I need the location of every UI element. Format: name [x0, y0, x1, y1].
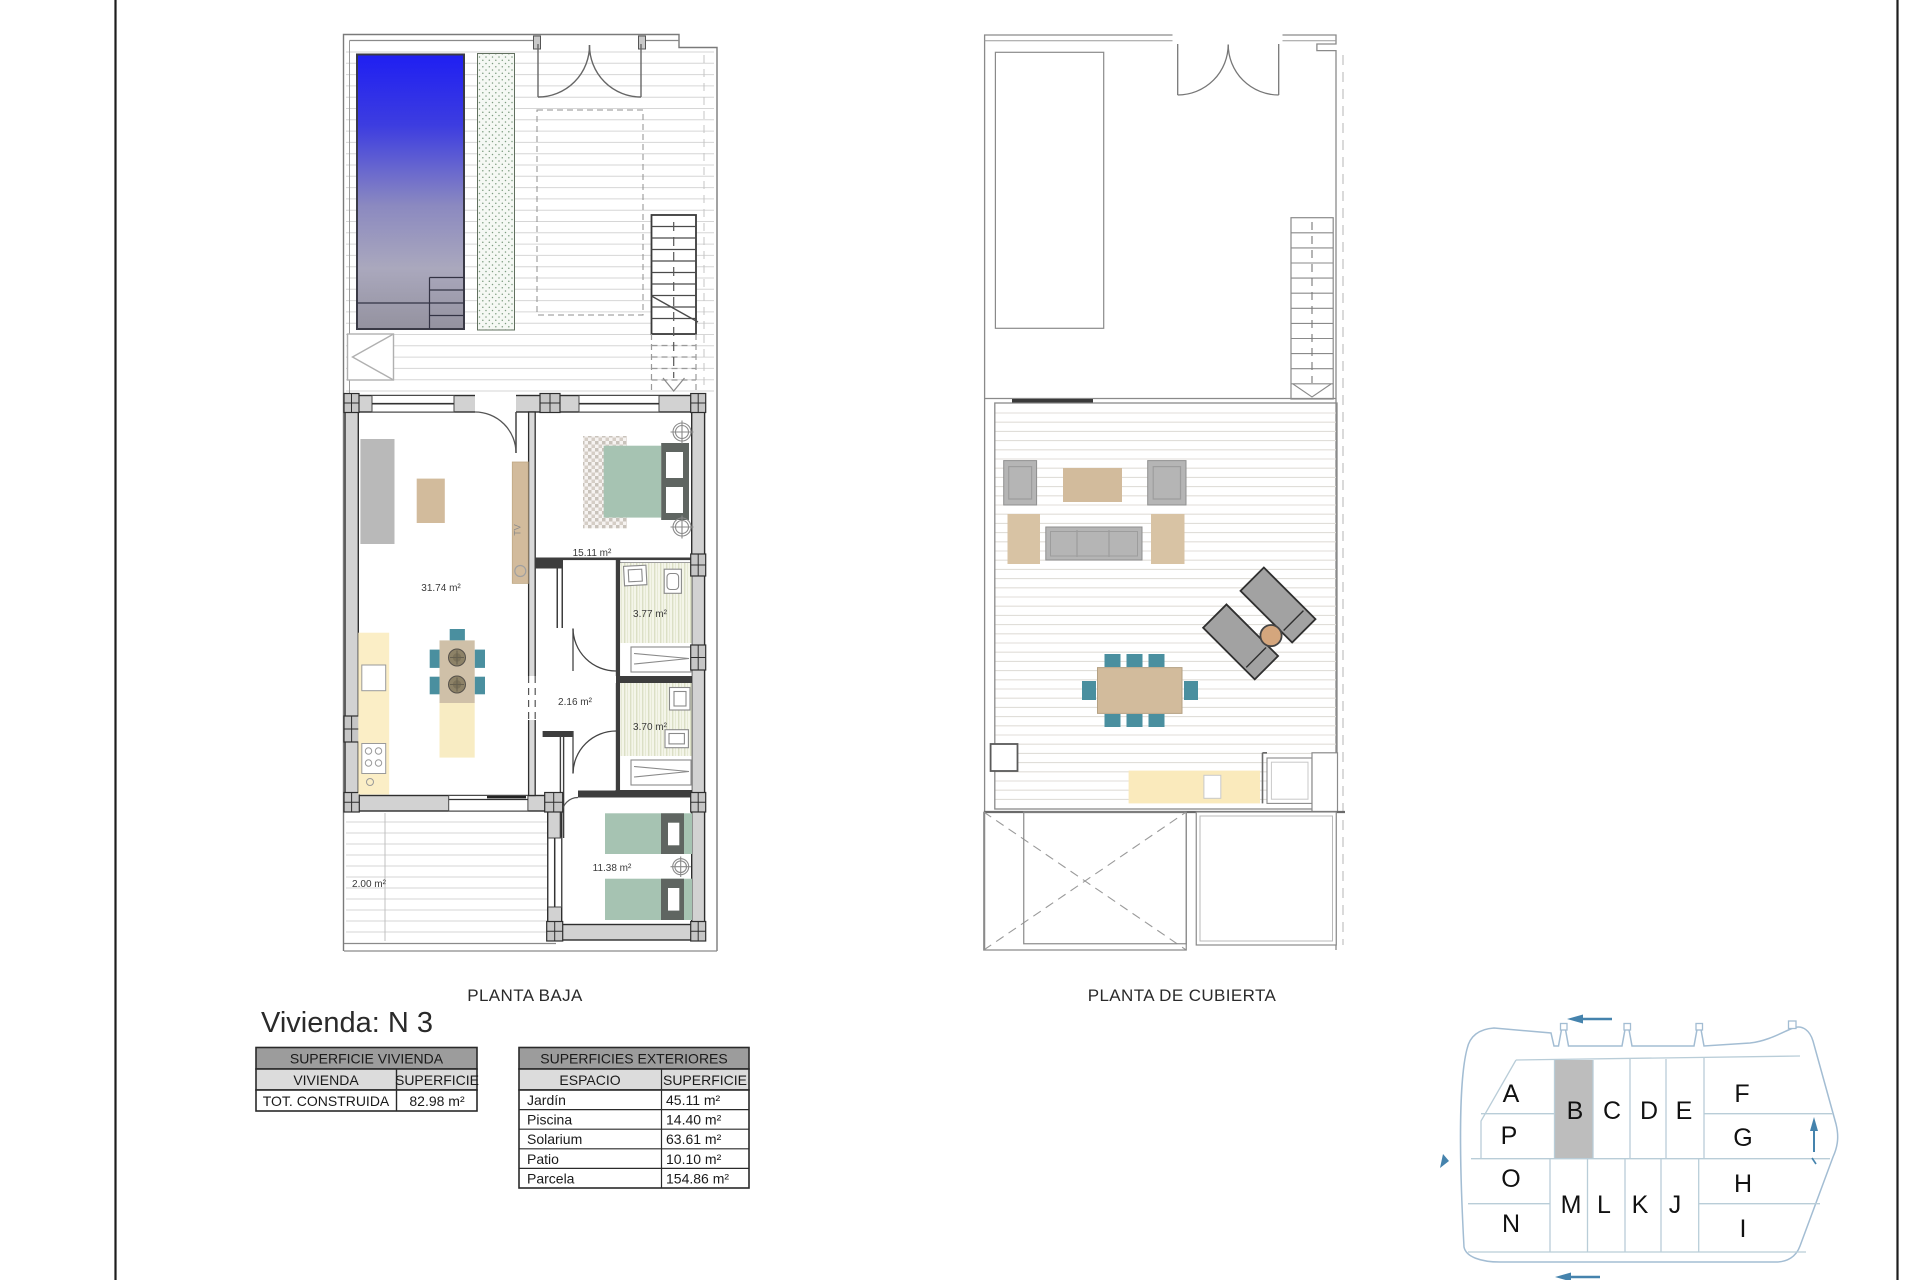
svg-text:Piscina: Piscina	[527, 1112, 572, 1128]
svg-text:H: H	[1734, 1170, 1752, 1198]
svg-text:Vivienda: N 3: Vivienda: N 3	[261, 1007, 433, 1039]
svg-text:15.11 m²: 15.11 m²	[573, 548, 612, 559]
svg-text:K: K	[1632, 1191, 1649, 1219]
svg-text:D: D	[1640, 1097, 1658, 1125]
svg-text:2.16 m²: 2.16 m²	[558, 697, 593, 708]
svg-text:154.86 m²: 154.86 m²	[666, 1170, 729, 1186]
svg-text:G: G	[1733, 1124, 1752, 1152]
svg-text:L: L	[1597, 1191, 1611, 1219]
svg-text:TOT. CONSTRUIDA: TOT. CONSTRUIDA	[263, 1093, 390, 1109]
svg-text:2.00 m²: 2.00 m²	[352, 879, 387, 890]
svg-text:J: J	[1669, 1191, 1682, 1219]
svg-text:F: F	[1734, 1080, 1749, 1108]
svg-text:SUPERFICIE VIVIENDA: SUPERFICIE VIVIENDA	[290, 1051, 444, 1067]
svg-text:VIVIENDA: VIVIENDA	[293, 1072, 359, 1088]
svg-text:I: I	[1740, 1215, 1747, 1243]
svg-text:O: O	[1501, 1165, 1520, 1193]
svg-text:10.10 m²: 10.10 m²	[666, 1151, 722, 1167]
svg-text:SUPERFICIES EXTERIORES: SUPERFICIES EXTERIORES	[540, 1051, 727, 1067]
svg-text:3.77 m²: 3.77 m²	[633, 609, 668, 620]
svg-text:SUPERFICIE: SUPERFICIE	[395, 1072, 479, 1088]
svg-text:PLANTA DE CUBIERTA: PLANTA DE CUBIERTA	[1088, 986, 1277, 1005]
svg-text:11.38 m²: 11.38 m²	[593, 863, 632, 874]
svg-text:A: A	[1503, 1080, 1520, 1108]
svg-text:Jardín: Jardín	[527, 1092, 566, 1108]
svg-text:M: M	[1561, 1191, 1582, 1219]
svg-text:N: N	[1502, 1210, 1520, 1238]
svg-text:Parcela: Parcela	[527, 1170, 575, 1186]
svg-text:SUPERFICIE: SUPERFICIE	[663, 1072, 747, 1088]
svg-text:3.70 m²: 3.70 m²	[633, 722, 668, 733]
svg-text:P: P	[1501, 1122, 1518, 1150]
svg-text:45.11 m²: 45.11 m²	[666, 1092, 721, 1108]
svg-text:B: B	[1567, 1097, 1584, 1125]
svg-text:Solarium: Solarium	[527, 1131, 582, 1147]
svg-text:82.98 m²: 82.98 m²	[409, 1093, 465, 1109]
svg-text:Patio: Patio	[527, 1151, 559, 1167]
svg-text:TV: TV	[513, 524, 523, 536]
svg-text:ESPACIO: ESPACIO	[559, 1072, 620, 1088]
svg-text:14.40 m²: 14.40 m²	[666, 1112, 722, 1128]
svg-text:E: E	[1676, 1097, 1693, 1125]
svg-text:63.61 m²: 63.61 m²	[666, 1131, 722, 1147]
svg-text:PLANTA BAJA: PLANTA BAJA	[467, 986, 583, 1005]
svg-text:31.74 m²: 31.74 m²	[421, 583, 461, 594]
svg-text:C: C	[1603, 1097, 1621, 1125]
